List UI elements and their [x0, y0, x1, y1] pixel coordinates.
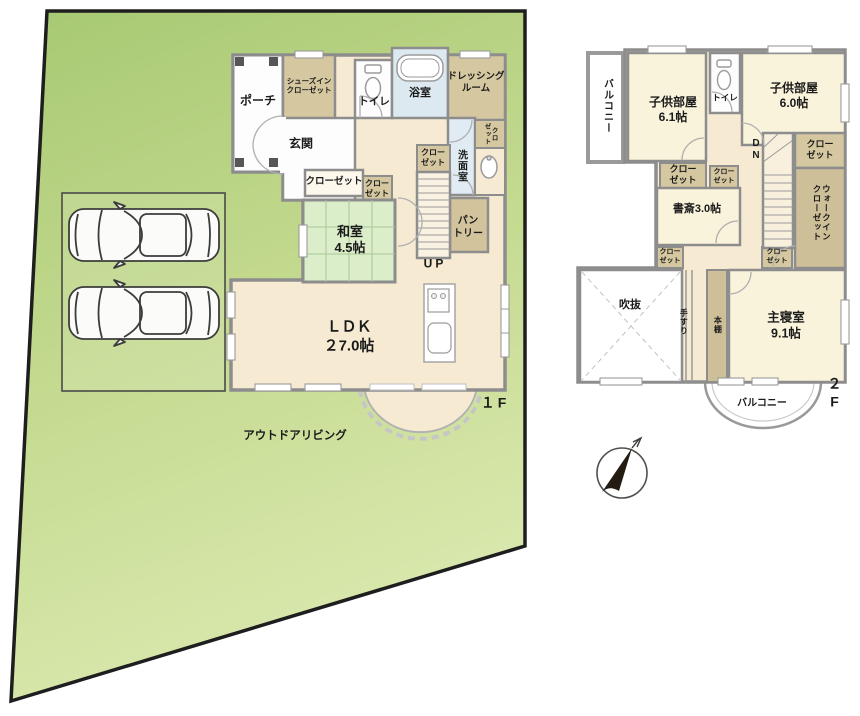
bookshelf-strip — [707, 270, 727, 382]
stairs-1f — [417, 172, 450, 258]
floor-plan-canvas: ポーチ シューズイン クローゼット トイレ 浴室 ドレッシング ルーム 玄関 ク… — [0, 0, 860, 716]
room-study — [657, 188, 740, 245]
car-1 — [69, 202, 219, 268]
room-washitsu — [303, 200, 395, 282]
room-closet-stairs-1f — [417, 145, 450, 172]
room-closet-study — [657, 247, 683, 268]
toilet-tank-2f — [717, 60, 731, 67]
compass-north-icon — [597, 438, 647, 498]
kitchen-sink — [428, 323, 451, 353]
room-shoes-in-closet — [283, 55, 335, 120]
room-kids-2 — [742, 53, 845, 145]
room-closet-hall — [305, 170, 363, 196]
stove — [428, 289, 449, 312]
room-walk-in-closet — [795, 168, 845, 268]
room-closet-wash — [475, 120, 505, 148]
floor-plan-drawing — [0, 0, 860, 716]
room-kids-1 — [628, 53, 706, 161]
toilet-bowl-1f — [366, 78, 381, 99]
room-closet-hall-small — [363, 176, 392, 202]
void-atrium — [580, 270, 682, 382]
balcony-bottom-2f — [705, 382, 821, 428]
toilet-bowl-2f — [718, 71, 731, 90]
fixtures-2f — [717, 60, 731, 90]
room-closet-stairs-2f — [762, 247, 792, 268]
room-porch — [233, 55, 283, 172]
room-closet-kids2 — [795, 133, 845, 168]
room-dressing — [448, 55, 505, 120]
floor2-plan — [578, 46, 849, 428]
room-closet-hall-small-2f — [710, 166, 738, 188]
car-2 — [69, 280, 219, 346]
room-washroom — [448, 118, 475, 195]
stairs-2f — [763, 133, 793, 248]
room-closet-kids1 — [660, 163, 706, 188]
balcony-left-2f — [588, 53, 623, 162]
parking-area — [62, 193, 225, 391]
room-master-bedroom — [729, 270, 845, 382]
toilet-tank-1f — [365, 65, 381, 73]
room-pantry — [450, 198, 488, 252]
